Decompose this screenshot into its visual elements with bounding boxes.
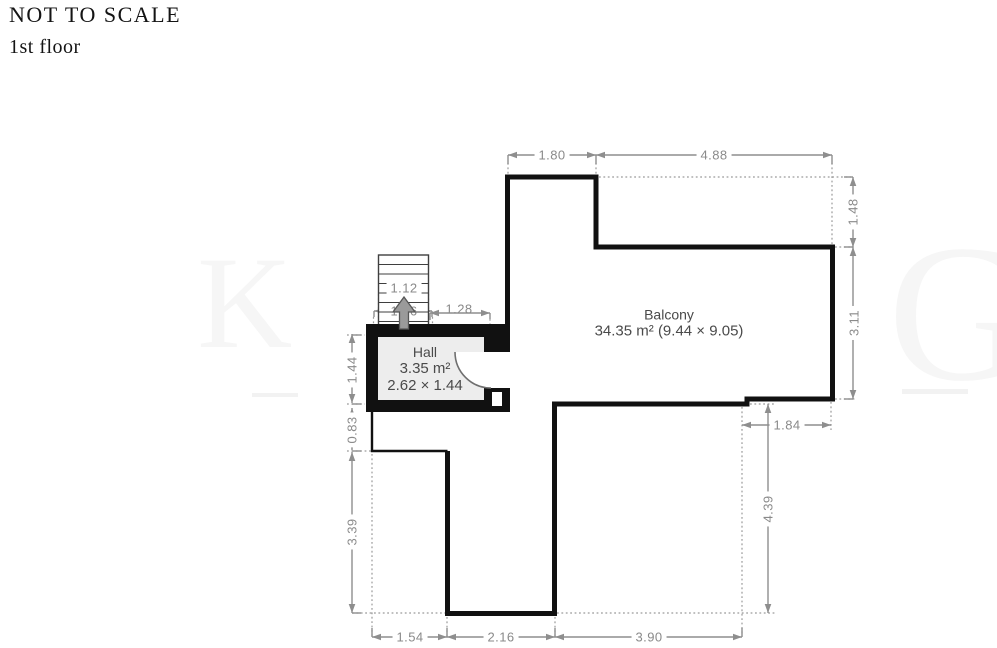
dim-right-balcony: 3.11	[847, 306, 862, 340]
dim-stair-inner: 1.12	[387, 281, 422, 296]
dim-bottom-left: 1.54	[393, 630, 428, 645]
dim-right-step: 1.48	[846, 195, 861, 230]
dim-bottom-middle: 2.16	[484, 630, 519, 645]
dim-left-lower: 3.39	[345, 515, 360, 550]
dim-hall-top: 1.28	[446, 302, 473, 317]
dim-left-hall: 1.44	[345, 353, 360, 388]
page-title: NOT TO SCALE	[9, 2, 181, 28]
hall-size: 2.62 × 1.44	[387, 377, 462, 394]
floorplan-page: K G NOT TO SCALE 1st floor	[0, 0, 997, 648]
hall-name: Hall	[387, 344, 462, 360]
hall-area: 3.35 m²	[387, 360, 462, 377]
balcony-label: Balcony 34.35 m² (9.44 × 9.05)	[595, 307, 744, 340]
balcony-name: Balcony	[595, 307, 744, 323]
dim-top-left: 1.80	[535, 148, 570, 163]
stair-up-arrow-icon	[391, 296, 417, 330]
balcony-area: 34.35 m² (9.44 × 9.05)	[595, 323, 744, 340]
dim-right-lower: 4.39	[761, 492, 776, 527]
hall-label: Hall 3.35 m² 2.62 × 1.44	[387, 344, 462, 394]
dim-left-step: 0.83	[345, 413, 360, 448]
dim-right-notch: 1.84	[770, 418, 805, 433]
dim-top-right: 4.88	[697, 148, 732, 163]
page-subtitle: 1st floor	[9, 36, 81, 59]
dim-bottom-right: 3.90	[632, 630, 667, 645]
